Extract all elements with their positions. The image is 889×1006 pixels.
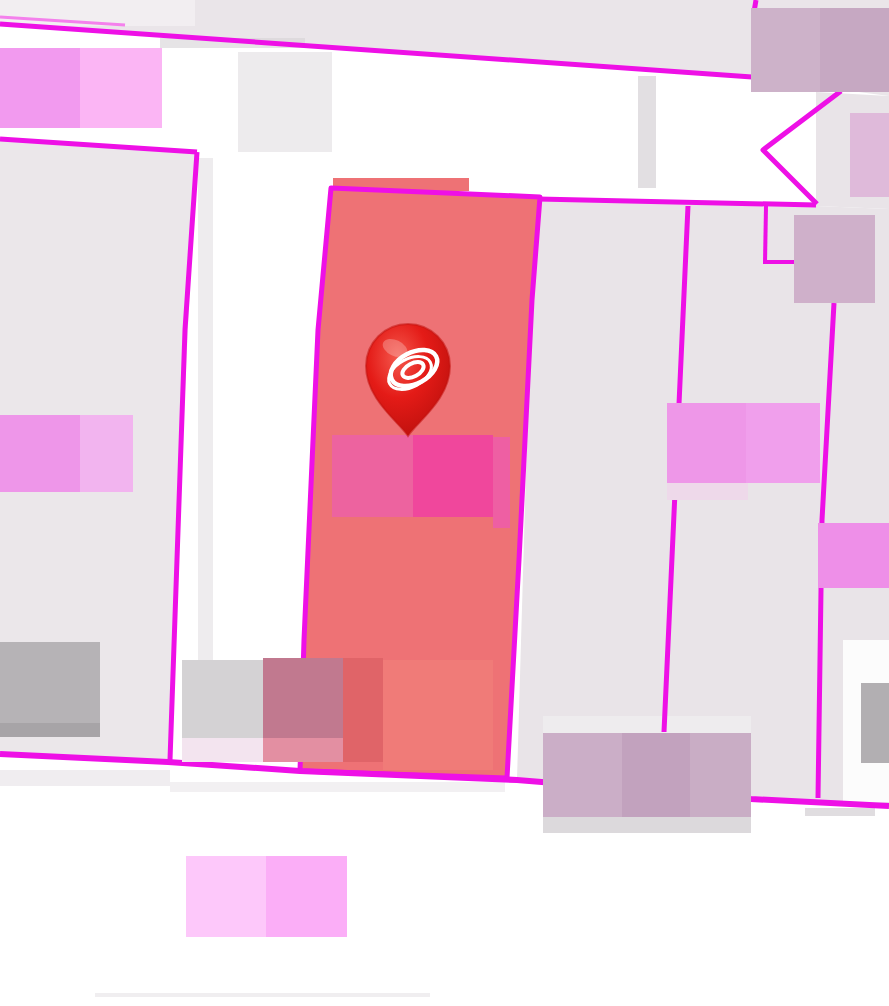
building-pink-east-lower xyxy=(818,523,889,588)
road-shading-mid-top xyxy=(238,52,332,152)
road-shading-bottom-strip xyxy=(95,993,430,997)
building-hotpink-selected-b xyxy=(413,435,493,517)
building-pink-east-a xyxy=(667,403,746,483)
building-gray-west-base xyxy=(0,723,100,737)
building-mauve-northeast-b xyxy=(820,8,889,92)
building-gray-center xyxy=(182,660,263,738)
road-shading-vertical-strip xyxy=(638,76,656,188)
building-lilac-east-edge xyxy=(850,113,889,197)
building-dark-salmon xyxy=(343,658,383,762)
building-mauve-northeast-a xyxy=(751,8,820,92)
road-shading-bottom-left xyxy=(0,770,170,786)
map-canvas[interactable] xyxy=(0,0,889,1006)
road-dither-above-building xyxy=(543,716,751,733)
building-mauve-south-a xyxy=(543,733,622,817)
building-gray-center-base xyxy=(182,738,263,762)
building-pink-east-b xyxy=(746,403,820,483)
building-pink-northwest-b xyxy=(80,48,162,128)
building-rose-center xyxy=(263,658,343,738)
building-pink-northwest-a xyxy=(0,48,80,128)
building-mauve-south-c xyxy=(690,733,751,817)
parcel-boundary-notch-vertical xyxy=(765,206,766,263)
building-hotpink-selected-edge xyxy=(493,437,510,528)
building-salmon-overlay xyxy=(383,660,493,770)
building-mauve-south-base xyxy=(543,817,751,833)
road-shading-west-edge xyxy=(198,158,213,698)
cadastral-map-svg xyxy=(0,0,889,1006)
building-pink-east-base xyxy=(667,483,748,500)
building-rose-center-base xyxy=(263,738,343,762)
building-mauve-east-upper xyxy=(794,215,875,303)
road-shading-below-line-right xyxy=(805,808,875,816)
building-pink-west-b xyxy=(80,415,133,492)
building-pink-south-a xyxy=(186,856,266,937)
building-pink-south-b xyxy=(266,856,347,937)
building-gray-southeast xyxy=(861,683,889,763)
building-hotpink-selected-a xyxy=(332,435,413,517)
road-shading-bottom-mid xyxy=(170,782,505,792)
building-gray-west xyxy=(0,642,100,723)
building-pink-west-a xyxy=(0,415,80,492)
building-mauve-south-b xyxy=(622,733,690,817)
